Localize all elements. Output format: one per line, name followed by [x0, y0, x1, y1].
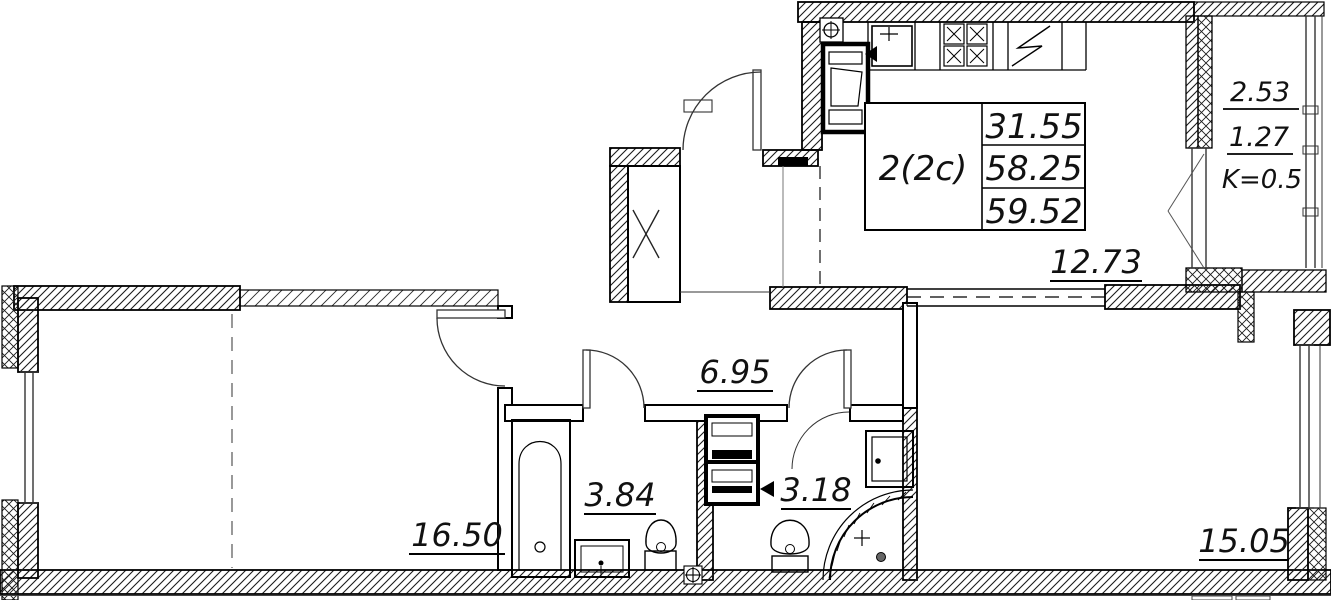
pier-left-top — [18, 298, 38, 372]
vent-grille-wc-icon — [684, 566, 702, 584]
wall-wc-north — [850, 405, 903, 421]
pier-right-bottom-ins — [1308, 508, 1326, 580]
unit-total-area: 59.52 — [985, 192, 1082, 232]
area-kitchen-living: 12.73 — [1050, 243, 1142, 281]
area-bedroom-right: 15.05 — [1198, 522, 1290, 560]
stove-icon — [944, 24, 987, 66]
toilet-wc-icon — [771, 520, 809, 572]
window-left-wall — [20, 372, 38, 503]
strip-left-ins-bottom — [2, 500, 18, 600]
pier-right-top — [1294, 310, 1330, 345]
wall-upper-left — [610, 166, 628, 302]
unit-floor-area: 58.25 — [985, 149, 1082, 189]
area-shower-room: 3.18 — [780, 471, 851, 509]
pier-below-balcony — [1238, 292, 1254, 342]
window-balcony-glazing — [1303, 16, 1322, 268]
area-bathroom: 3.84 — [584, 476, 655, 514]
balcony-labels: 2.53 1.27 K=0.5 — [1222, 77, 1302, 195]
bathtub-icon — [512, 420, 570, 577]
pier-right-bottom — [1288, 508, 1308, 580]
facade-frame-b — [1236, 596, 1270, 600]
fridge-icon — [1012, 26, 1050, 66]
floor-plan-drawing: 2(2c) 31.55 58.25 59.52 12.73 6.95 3.84 … — [0, 0, 1331, 600]
vent-grille-kitchen-icon — [820, 18, 843, 42]
unit-type-label: 2(2c) — [879, 149, 968, 189]
wall-kitchen-bottom-left — [770, 287, 907, 309]
pier-balcony-part-b — [1198, 16, 1212, 148]
wall-partition-16 — [240, 290, 498, 306]
wall-entry-stub — [610, 148, 680, 166]
wall-balcony-bottom-a — [1186, 268, 1242, 292]
unit-info-table: 2(2c) 31.55 58.25 59.52 — [865, 103, 1085, 232]
wall-lower-top-thick — [14, 286, 240, 310]
area-hallway: 6.95 — [699, 353, 770, 391]
wall-kitchen-top — [798, 2, 1194, 22]
pier-balcony-part-a — [1186, 16, 1198, 148]
area-bedroom-left: 16.50 — [411, 516, 503, 554]
wall-bath-north-a — [505, 405, 583, 421]
opening-kitchen-bedroom — [907, 289, 1105, 306]
entry-step — [684, 100, 712, 112]
vent-shaft-wc-icon — [706, 416, 774, 504]
unit-living-area: 31.55 — [985, 107, 1082, 147]
window-bedroom-right — [1296, 345, 1320, 508]
strip-left-ins-top — [2, 286, 18, 368]
pier-left-bottom — [18, 503, 38, 578]
balcony-area-full: 2.53 — [1230, 77, 1290, 108]
wall-corridor-15 — [903, 303, 917, 408]
wall-wc-right — [903, 408, 917, 580]
window-opening-triangle — [1168, 154, 1204, 268]
door-shower-room — [789, 350, 851, 469]
kitchen-sink-icon — [872, 26, 912, 66]
wall-kitchen-left — [802, 22, 822, 150]
window-balcony-partition — [1168, 148, 1210, 268]
balcony-coefficient: K=0.5 — [1222, 165, 1302, 195]
door-bathroom — [583, 350, 644, 408]
wall-balcony-bottom-b — [1242, 270, 1326, 292]
toilet-bathroom-icon — [645, 520, 676, 570]
door-entrance — [683, 70, 761, 150]
facade-frame-a — [1192, 596, 1232, 600]
wall-bottom — [0, 570, 1331, 594]
wall-balcony-top — [1194, 2, 1324, 16]
vent-arrow-wc — [760, 481, 774, 497]
shaft-box — [628, 166, 680, 302]
lintel-black — [778, 157, 808, 166]
balcony-area-reduced: 1.27 — [1229, 122, 1289, 153]
door-bedroom-left — [437, 310, 505, 386]
floor-plan-page: 2(2c) 31.55 58.25 59.52 12.73 6.95 3.84 … — [0, 0, 1331, 600]
